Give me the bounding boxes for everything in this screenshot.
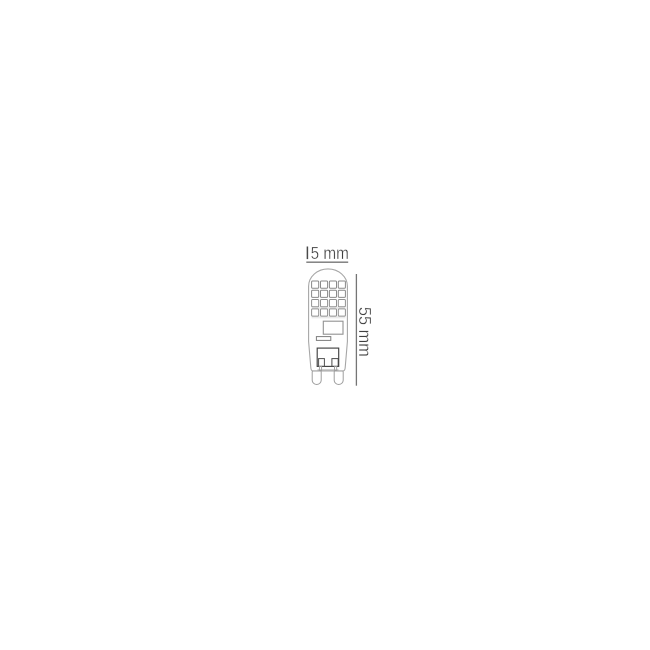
svg-text:5 mm: 5 mm xyxy=(311,243,349,263)
svg-text:55 mm: 55 mm xyxy=(355,307,375,357)
